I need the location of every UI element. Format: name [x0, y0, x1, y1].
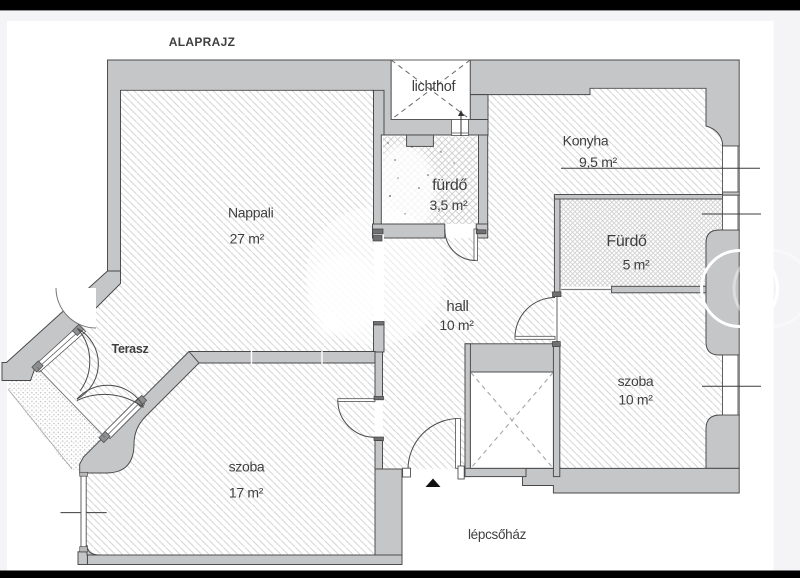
- svg-text:Fürdő: Fürdő: [606, 233, 647, 250]
- svg-text:3,5 m²: 3,5 m²: [429, 197, 468, 213]
- svg-text:ALAPRAJZ: ALAPRAJZ: [169, 35, 235, 49]
- svg-text:Terasz: Terasz: [112, 342, 149, 356]
- svg-text:lichthof: lichthof: [412, 79, 457, 95]
- svg-text:9,5 m²: 9,5 m²: [579, 154, 618, 170]
- svg-text:10 m²: 10 m²: [439, 317, 474, 333]
- svg-text:17 m²: 17 m²: [229, 485, 264, 501]
- svg-text:hall: hall: [446, 298, 468, 315]
- svg-text:10 m²: 10 m²: [618, 392, 653, 408]
- svg-text:lépcsőház: lépcsőház: [468, 527, 527, 542]
- svg-text:szoba: szoba: [618, 373, 654, 389]
- svg-text:27 m²: 27 m²: [230, 231, 265, 247]
- svg-text:5 m²: 5 m²: [623, 257, 650, 273]
- svg-text:Nappali: Nappali: [228, 205, 274, 221]
- svg-text:szoba: szoba: [229, 459, 265, 475]
- svg-text:fürdő: fürdő: [432, 177, 467, 194]
- svg-text:Konyha: Konyha: [563, 133, 609, 149]
